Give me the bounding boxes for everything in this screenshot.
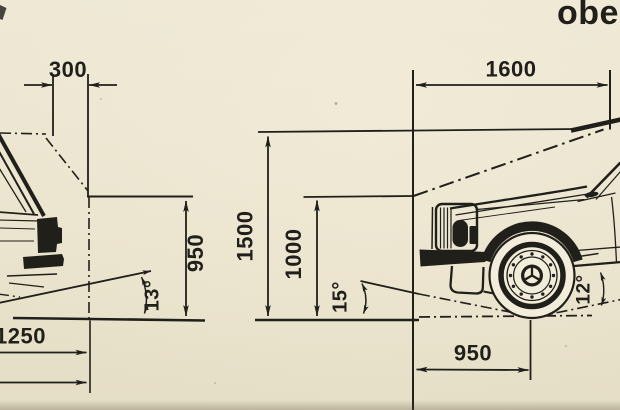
scanned-technical-drawing-page: 300 950 13° 1250	[0, 0, 620, 410]
turn-signal	[470, 226, 477, 244]
dimension-label-950-front: 950	[454, 341, 492, 366]
drawing-canvas: 300 950 13° 1250	[0, 0, 620, 410]
hood-height-reference-line	[304, 196, 414, 197]
dimension-label-1250: 1250	[0, 324, 46, 349]
dimension-label-950: 950	[183, 234, 208, 272]
page-headline-cropped: obe	[557, 0, 619, 32]
front-panel-edge	[432, 207, 433, 249]
page-bottom-shadow	[0, 400, 620, 410]
angle-label-13: 13°	[142, 280, 164, 312]
angle-label-12: 12°	[574, 274, 595, 304]
dimension-label-1500: 1500	[233, 211, 258, 262]
dimension-label-1600: 1600	[486, 57, 537, 82]
dimension-label-1000: 1000	[281, 229, 306, 280]
dimension-line	[417, 370, 529, 371]
front-wheel	[490, 233, 575, 318]
headlight-lens	[453, 220, 469, 247]
dimension-label-300: 300	[49, 57, 87, 82]
angle-label-15: 15°	[330, 281, 352, 313]
